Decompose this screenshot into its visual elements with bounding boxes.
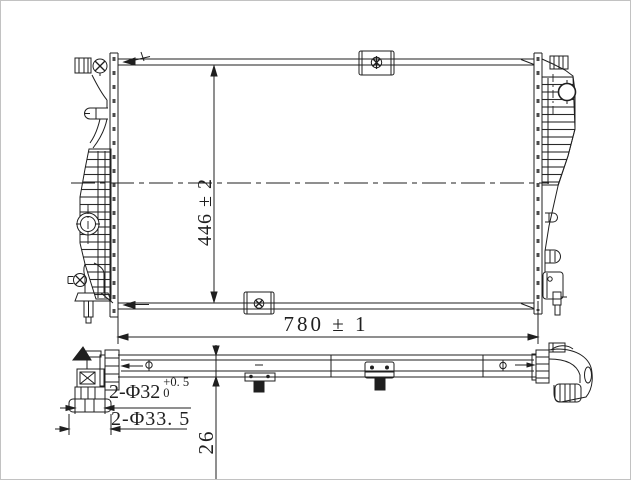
dimension-core-thickness: 26 [196,412,216,472]
dimension-pipe-inner-diameter: 2-Φ32 +0. 5 0 [109,382,189,402]
dimension-core-width: 780 ± 1 [245,314,407,335]
pipe-inner-tolerance: +0. 5 0 [163,377,189,399]
tolerance-lower: 0 [163,388,189,399]
radiator-technical-drawing: 446 ± 2 780 ± 1 2-Φ32 +0. 5 0 2-Φ33. 5 2… [0,0,631,480]
pipe-inner-value: 2-Φ32 [109,382,160,402]
dimension-core-height: 446 ± 2 [195,162,215,262]
right-tank [542,56,576,315]
right-header-strip [534,53,542,314]
main-view [68,51,576,323]
dimension-lines-main [118,66,538,344]
bar-marks [122,360,534,372]
right-elbow-fitting [532,343,592,402]
dimension-pipe-outer-diameter: 2-Φ33. 5 [111,409,190,429]
right-hanger-tab [365,362,394,390]
drawing-canvas [1,1,631,480]
top-bracket [359,51,394,75]
left-tank [68,58,113,323]
left-hanger-tab [245,373,275,392]
